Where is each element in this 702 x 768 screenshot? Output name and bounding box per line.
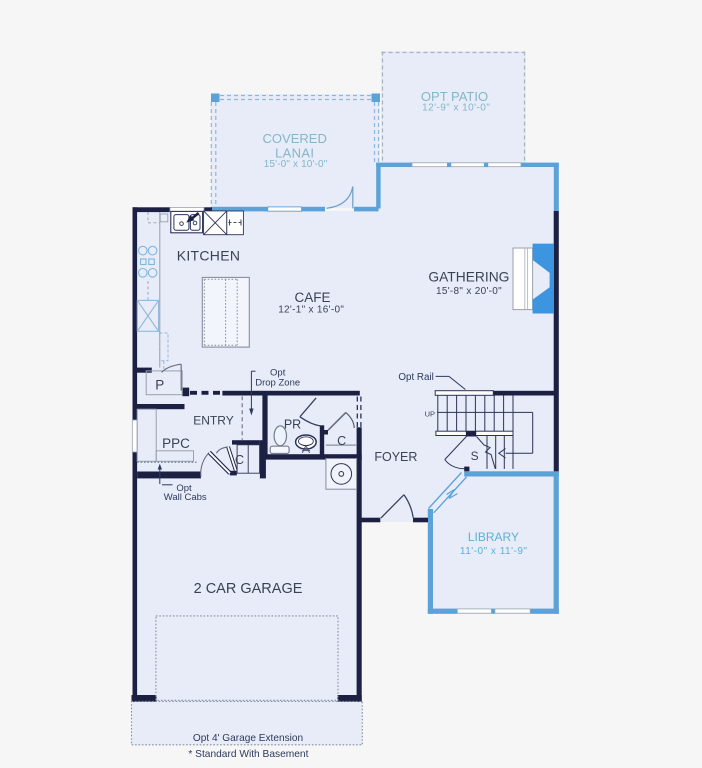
svg-text:S: S xyxy=(471,449,479,463)
svg-text:15'-8" x 20'-0": 15'-8" x 20'-0" xyxy=(436,286,502,297)
svg-text:PPC: PPC xyxy=(162,436,190,451)
svg-text:15'-0" x 10'-0": 15'-0" x 10'-0" xyxy=(264,159,328,170)
svg-text:P: P xyxy=(155,377,164,392)
svg-text:* Standard With Basement: * Standard With Basement xyxy=(188,749,308,760)
svg-text:ENTRY: ENTRY xyxy=(193,414,233,428)
svg-text:COVERED: COVERED xyxy=(263,131,327,146)
svg-text:12'-1" x 16'-0": 12'-1" x 16'-0" xyxy=(278,304,344,315)
svg-text:11'-0" x 11'-9": 11'-0" x 11'-9" xyxy=(460,546,528,557)
svg-text:Opt Rail: Opt Rail xyxy=(398,372,433,383)
svg-text:LIBRARY: LIBRARY xyxy=(468,530,519,544)
svg-text:2 CAR GARAGE: 2 CAR GARAGE xyxy=(194,581,303,597)
svg-text:PR: PR xyxy=(284,418,301,432)
svg-text:Wall Cabs: Wall Cabs xyxy=(164,492,207,503)
svg-text:FOYER: FOYER xyxy=(374,450,417,464)
svg-text:CAFE: CAFE xyxy=(294,290,330,305)
svg-text:Opt 4' Garage Extension: Opt 4' Garage Extension xyxy=(193,733,303,744)
svg-text:C: C xyxy=(337,434,346,448)
svg-text:GATHERING: GATHERING xyxy=(428,269,509,284)
svg-text:UP: UP xyxy=(425,410,435,419)
svg-text:Drop Zone: Drop Zone xyxy=(255,378,300,389)
svg-text:KITCHEN: KITCHEN xyxy=(177,247,241,263)
svg-text:12'-9" x 10'-0": 12'-9" x 10'-0" xyxy=(422,103,490,114)
svg-text:C: C xyxy=(235,453,244,467)
